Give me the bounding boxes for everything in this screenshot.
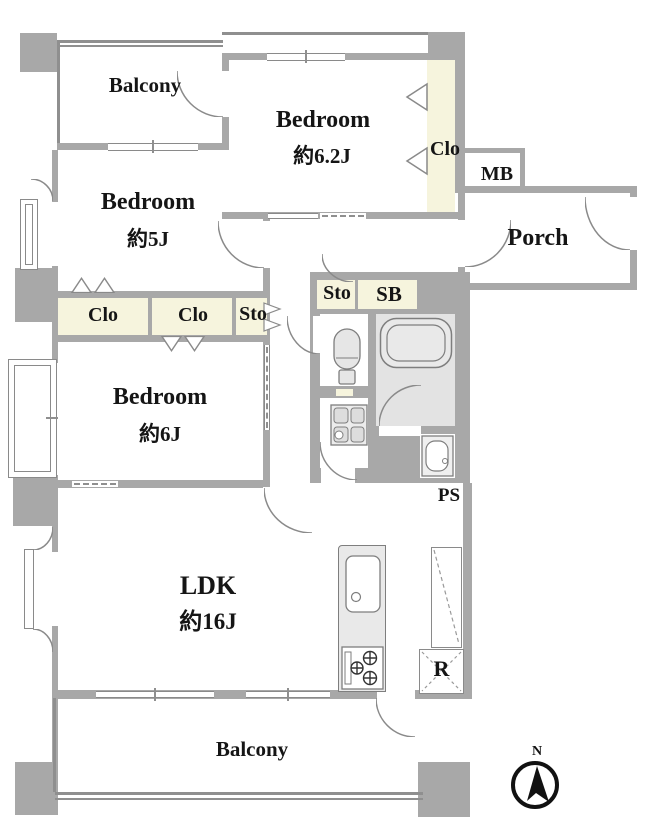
door-arc-washroom — [320, 442, 357, 480]
wall-porch — [458, 283, 637, 290]
wall-mb — [465, 148, 525, 153]
room-label-sto-2: Sto — [314, 283, 360, 304]
door-gap — [263, 221, 270, 268]
room-label-clo-main: Clo — [419, 139, 471, 160]
balcony-rail — [53, 698, 56, 792]
pillar — [20, 33, 57, 72]
door-arc-window-shutter — [33, 629, 53, 652]
room-label-sb: SB — [366, 283, 412, 305]
washer-pan-icon — [330, 404, 368, 446]
folding-door-mark — [404, 82, 428, 112]
door-arc-hall — [322, 254, 353, 282]
washbasin-icon — [421, 435, 454, 477]
balcony-rail — [57, 40, 223, 43]
bathtub-icon — [379, 317, 453, 369]
door-arc-bedroom5 — [218, 221, 264, 268]
door-arc-toilet — [287, 316, 320, 354]
sliding-door-dash — [74, 483, 116, 485]
room-label-mb: MB — [470, 164, 524, 185]
door-gap — [379, 426, 421, 436]
door-arc-window-shutter — [33, 527, 53, 550]
room-label-ps: PS — [432, 486, 466, 506]
shelf — [336, 389, 353, 396]
window-tick — [287, 688, 289, 701]
door-gap — [222, 71, 229, 117]
room-label-bedroom62-size: 約6.2J — [252, 145, 392, 167]
window-tick — [152, 140, 154, 153]
door-arc-ldk — [264, 488, 312, 533]
room-label-bedroom6-name: Bedroom — [85, 385, 235, 410]
wall — [455, 53, 465, 193]
compass-icon: N — [503, 740, 567, 816]
pillar — [13, 476, 57, 526]
room-label-balcony-bottom: Balcony — [187, 738, 317, 760]
room-label-bedroom5-name: Bedroom — [73, 190, 223, 215]
pillar — [15, 268, 57, 322]
sliding-door-dash — [266, 347, 268, 428]
toilet-icon — [330, 328, 364, 386]
balcony-rail — [57, 40, 60, 146]
compass-north-label: N — [532, 744, 542, 759]
door-arc-front-door — [585, 197, 630, 250]
room-label-porch: Porch — [498, 226, 578, 251]
pillar — [418, 762, 470, 817]
balcony-rail — [55, 798, 423, 800]
room-label-bedroom6-size: 約6J — [90, 423, 230, 445]
room-label-refrigerator: R — [419, 657, 464, 680]
room-label-ldk-size: 約16J — [140, 610, 276, 634]
door-arc-bathroom — [379, 385, 421, 426]
bay-window-inner — [25, 204, 33, 265]
room-label-clo-a: Clo — [68, 305, 138, 326]
kitchen-sink-icon — [345, 555, 381, 613]
closet-main — [427, 60, 455, 212]
floor-plan: N Balcony Bedroom 約6.2J Clo MB Porch Bed… — [0, 0, 645, 832]
pantry-dash — [431, 547, 462, 648]
sliding-door-dash — [322, 215, 364, 217]
folding-door-mark — [70, 276, 116, 293]
room-label-ldk-name: LDK — [146, 572, 270, 599]
pillar — [15, 762, 58, 815]
folding-door-mark — [160, 336, 206, 353]
wall-porch — [458, 186, 637, 193]
window-gap — [52, 202, 58, 266]
room-label-sto-1: Sto — [228, 304, 278, 325]
balcony-rail — [57, 45, 223, 47]
wall-porch — [458, 193, 465, 220]
window-tick — [305, 50, 307, 63]
door-gap — [630, 197, 637, 250]
door-arc-balcony-ldk — [376, 698, 415, 737]
window-tick — [46, 417, 58, 419]
wall — [463, 483, 472, 697]
room-label-bedroom5-size: 約5J — [78, 228, 218, 250]
room-label-balcony-top: Balcony — [80, 74, 210, 96]
room-label-clo-b: Clo — [158, 305, 228, 326]
balcony-rail — [55, 792, 423, 795]
door-arc-window-shutter — [31, 179, 53, 201]
room-label-bedroom62-name: Bedroom — [248, 108, 398, 133]
window-tick — [154, 688, 156, 701]
window — [268, 213, 318, 219]
stove-icon — [341, 646, 384, 690]
bay-window — [24, 549, 34, 629]
window-gap — [52, 552, 58, 626]
